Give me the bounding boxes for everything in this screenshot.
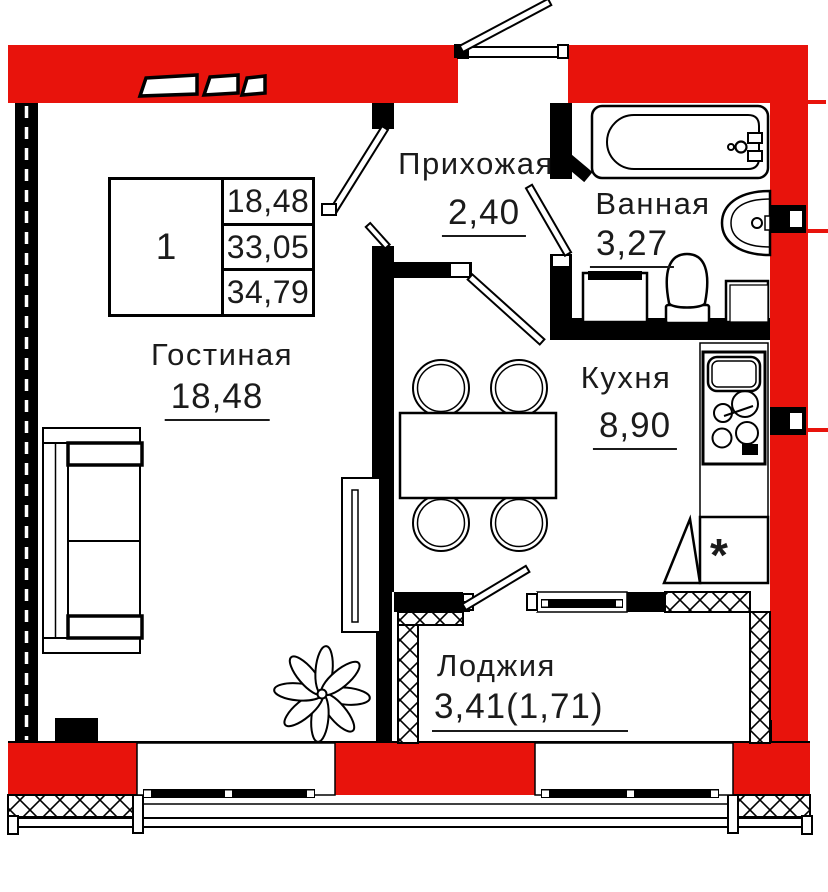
unit-number: 1 bbox=[111, 180, 224, 314]
room-area-hallway: 2,40 bbox=[442, 193, 526, 237]
tv-stand bbox=[342, 478, 380, 632]
window-living bbox=[137, 743, 335, 798]
room-label-living: Гостиная bbox=[151, 337, 293, 373]
dining-table bbox=[400, 413, 556, 498]
room-label-hallway: Прихожая bbox=[398, 146, 554, 182]
window-kitchen-loggia bbox=[537, 592, 627, 612]
plant bbox=[273, 645, 370, 742]
red-tick-mark bbox=[806, 229, 828, 233]
sofa bbox=[43, 428, 142, 653]
room-area-kitchen: 8,90 bbox=[593, 406, 677, 450]
room-area-living: 18,48 bbox=[165, 377, 270, 421]
kitchen-counter bbox=[700, 343, 768, 517]
room-label-kitchen: Кухня bbox=[581, 360, 671, 396]
door-kitchen bbox=[450, 263, 544, 345]
room-label-bathroom: Ванная bbox=[595, 186, 710, 222]
door-living-room bbox=[322, 126, 390, 248]
unit-living-area: 18,48 bbox=[224, 180, 312, 226]
chair bbox=[413, 360, 469, 416]
window-loggia-outer bbox=[535, 743, 733, 798]
fridge-mark: * bbox=[710, 528, 728, 582]
red-tick-mark bbox=[808, 100, 826, 104]
door-kitchen-loggia bbox=[459, 566, 537, 612]
bathtub bbox=[592, 106, 768, 178]
chair bbox=[413, 495, 469, 551]
duct-symbol bbox=[770, 407, 806, 435]
tv-screen bbox=[352, 490, 358, 622]
red-tick-mark bbox=[806, 428, 828, 432]
unit-total-area: 34,79 bbox=[224, 271, 312, 314]
floor-plan-drawing bbox=[0, 0, 828, 892]
duct-symbol bbox=[770, 205, 806, 233]
dining-set bbox=[400, 360, 556, 551]
washing-machine bbox=[583, 271, 647, 322]
room-area-bathroom: 3,27 bbox=[590, 224, 674, 268]
unit-apartment-area: 33,05 bbox=[224, 226, 312, 272]
bathroom-cabinet bbox=[726, 281, 768, 322]
chair bbox=[491, 360, 547, 416]
door-leaf bbox=[460, 0, 552, 52]
bathroom-sink bbox=[722, 191, 770, 255]
wall-pier bbox=[55, 718, 98, 742]
room-area-loggia: 3,41(1,71) bbox=[432, 687, 628, 732]
entrance-door bbox=[454, 0, 568, 103]
room-label-loggia: Лоджия bbox=[437, 648, 556, 684]
floor-plan: 1 18,48 33,05 34,79 Прихожая 2,40 Ванная… bbox=[0, 0, 828, 892]
unit-info-table: 1 18,48 33,05 34,79 bbox=[108, 177, 315, 317]
chair bbox=[491, 495, 547, 551]
